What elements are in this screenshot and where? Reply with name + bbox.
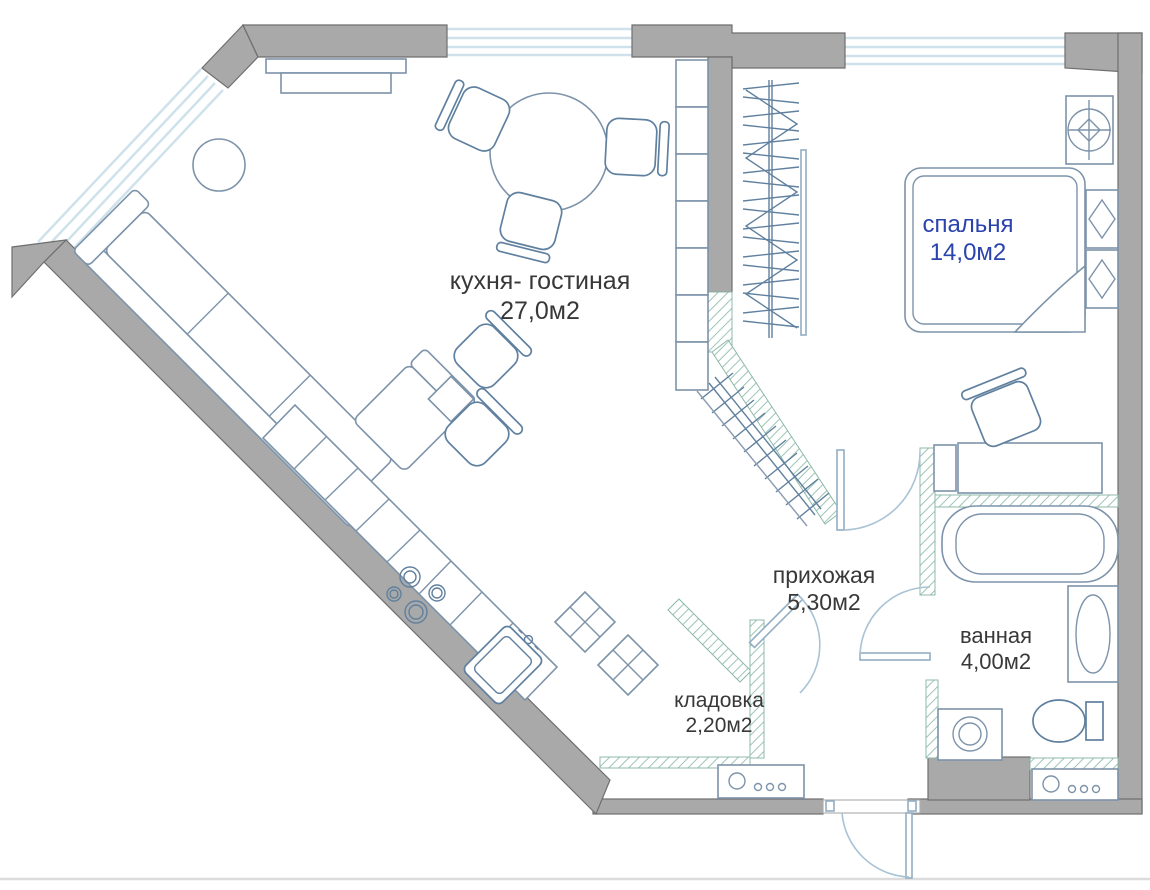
sideboard	[266, 59, 406, 93]
nightstand	[1086, 190, 1118, 248]
room-name: ванная	[960, 623, 1032, 648]
wall-top-b	[632, 25, 845, 68]
room-area: 5,30м2	[773, 589, 876, 616]
dining-chair	[495, 190, 564, 264]
partition-storage-diagonal	[668, 599, 751, 682]
desk-shelf	[934, 445, 956, 491]
nightstand	[1086, 250, 1118, 308]
window-bedroom	[845, 38, 1065, 64]
bathroom-cabinet	[1032, 769, 1118, 800]
room-label-bedroom: спальня 14,0м2	[922, 211, 1013, 268]
wall-bottom-right	[908, 799, 1142, 814]
tall-cabinet-x	[555, 592, 658, 695]
wall-diagonal	[44, 240, 610, 814]
window-living-top	[447, 29, 632, 55]
ceiling-light	[1066, 96, 1113, 164]
wardrobe-shelves	[676, 60, 708, 390]
room-area: 4,00м2	[960, 649, 1032, 675]
room-label-bathroom: ванная 4,00м2	[960, 623, 1032, 675]
sliding-door	[801, 150, 806, 335]
bedroom-door	[837, 450, 920, 530]
partition-closet-diagonal	[712, 340, 841, 524]
room-label-hallway: прихожая 5,30м2	[773, 562, 876, 616]
wall-closet-column	[708, 57, 732, 292]
desk-chair	[961, 367, 1048, 451]
room-label-kitchen-living: кухня- гостиная 27,0м2	[450, 267, 630, 326]
room-area: 2,20м2	[674, 714, 764, 739]
room-label-storage: кладовка 2,20м2	[674, 689, 764, 739]
wash-basin	[1068, 586, 1118, 682]
coffee-table	[193, 139, 245, 191]
desk	[958, 443, 1102, 493]
floor-plan: кухня- гостиная 27,0м2 спальня 14,0м2 пр…	[0, 0, 1150, 890]
room-name: спальня	[922, 211, 1013, 238]
ventilation-shaft	[928, 757, 1030, 800]
room-name: кухня- гостиная	[450, 267, 630, 295]
room-area: 14,0м2	[922, 239, 1013, 267]
dining-chair	[605, 118, 670, 177]
partition-hall-bath	[920, 448, 935, 595]
partition-washer-niche	[926, 680, 938, 758]
wall-right	[1118, 33, 1142, 813]
washing-machine	[938, 709, 1002, 760]
room-name: прихожая	[773, 562, 876, 588]
floor-plan-drawing	[0, 0, 1150, 890]
hanging-rail	[743, 80, 799, 338]
bathtub	[942, 506, 1118, 582]
wall-top-a	[243, 25, 447, 57]
toilet	[1033, 700, 1103, 742]
room-area: 27,0м2	[450, 297, 630, 327]
entrance-door	[823, 800, 920, 878]
wall-bottom-left	[593, 799, 823, 814]
room-name: кладовка	[674, 689, 764, 712]
shoe-cabinet	[718, 765, 804, 798]
